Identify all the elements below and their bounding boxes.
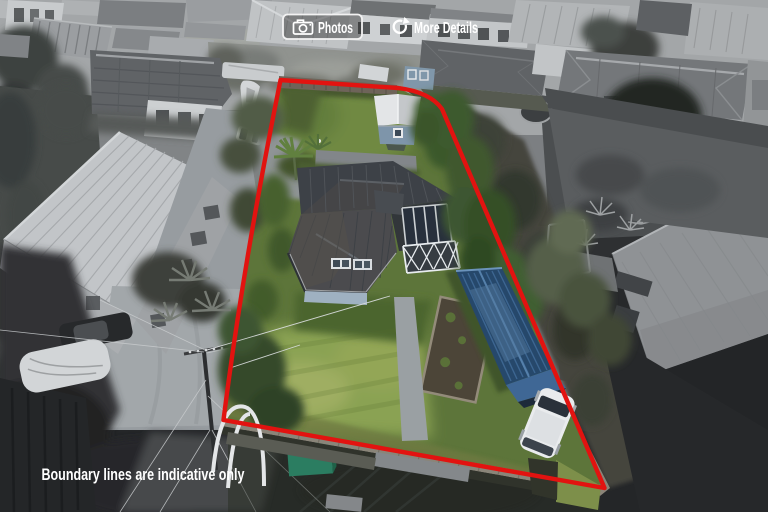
svg-text:Boundary lines are indicative: Boundary lines are indicative only [42,465,245,484]
svg-text:Photos: Photos [318,20,353,37]
svg-text:More Details: More Details [414,20,478,37]
